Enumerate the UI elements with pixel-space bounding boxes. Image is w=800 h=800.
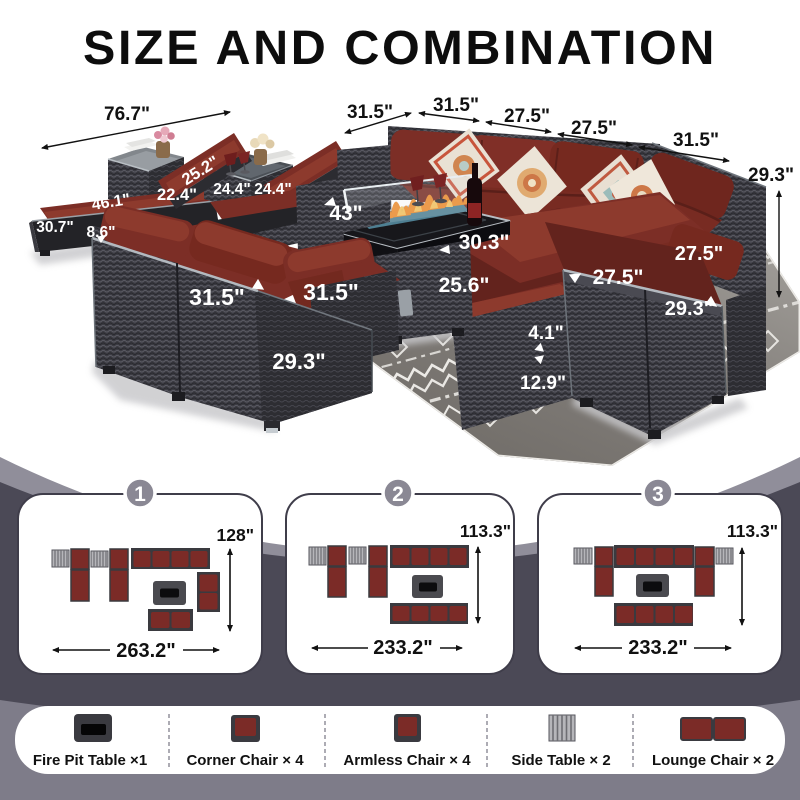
svg-text:4.1": 4.1" bbox=[528, 323, 563, 344]
svg-text:1: 1 bbox=[134, 483, 146, 506]
svg-text:24.4": 24.4" bbox=[254, 181, 292, 198]
svg-text:27.5": 27.5" bbox=[593, 266, 644, 289]
svg-text:Lounge Chair × 2: Lounge Chair × 2 bbox=[652, 752, 774, 769]
svg-text:128": 128" bbox=[217, 525, 255, 545]
svg-text:29.3": 29.3" bbox=[272, 349, 325, 374]
svg-text:31.5": 31.5" bbox=[303, 279, 359, 305]
svg-text:30.3": 30.3" bbox=[459, 231, 510, 254]
svg-text:27.5": 27.5" bbox=[504, 106, 550, 127]
svg-text:2: 2 bbox=[392, 483, 404, 506]
svg-text:Side Table × 2: Side Table × 2 bbox=[511, 752, 610, 769]
svg-text:233.2": 233.2" bbox=[373, 637, 433, 659]
svg-text:Fire Pit Table ×1: Fire Pit Table ×1 bbox=[33, 752, 147, 769]
svg-text:76.7": 76.7" bbox=[104, 104, 150, 125]
svg-text:31.5": 31.5" bbox=[673, 130, 719, 151]
svg-text:29.3": 29.3" bbox=[665, 298, 713, 320]
svg-text:22.4": 22.4" bbox=[157, 186, 197, 204]
svg-text:263.2": 263.2" bbox=[116, 640, 176, 662]
svg-text:24.4": 24.4" bbox=[213, 181, 251, 198]
svg-text:113.3": 113.3" bbox=[727, 521, 778, 541]
svg-text:Armless Chair × 4: Armless Chair × 4 bbox=[343, 752, 471, 769]
svg-text:233.2": 233.2" bbox=[628, 637, 688, 659]
svg-text:29.3": 29.3" bbox=[748, 165, 794, 186]
svg-text:31.5": 31.5" bbox=[189, 284, 245, 310]
svg-text:31.5": 31.5" bbox=[433, 95, 479, 116]
svg-text:113.3": 113.3" bbox=[460, 521, 511, 541]
svg-text:12.9": 12.9" bbox=[520, 373, 566, 394]
svg-text:30.7": 30.7" bbox=[36, 219, 74, 236]
svg-text:27.5": 27.5" bbox=[571, 118, 617, 139]
svg-text:27.5": 27.5" bbox=[675, 243, 723, 265]
svg-text:Corner Chair × 4: Corner Chair × 4 bbox=[186, 752, 304, 769]
svg-text:25.6": 25.6" bbox=[439, 274, 490, 297]
svg-text:SIZE AND COMBINATION: SIZE AND COMBINATION bbox=[83, 21, 717, 75]
svg-text:3: 3 bbox=[652, 483, 664, 506]
